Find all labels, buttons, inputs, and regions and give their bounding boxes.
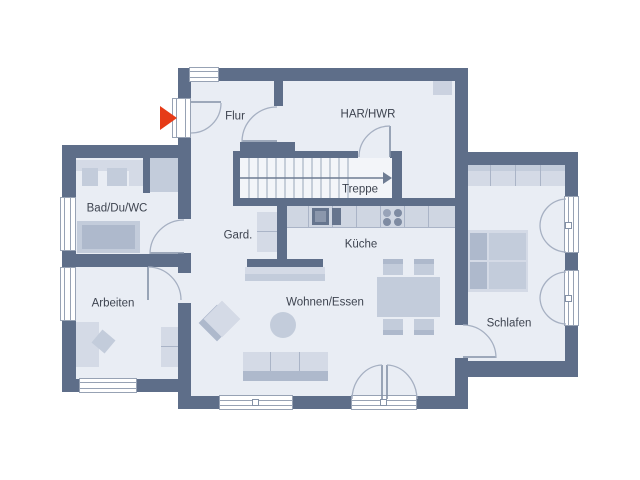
plan-line-overlay [0, 0, 640, 480]
room-label-gard: Gard. [224, 230, 253, 242]
hall-door-swing [242, 107, 277, 142]
room-label-flur: Flur [225, 111, 245, 123]
stair-direction-arrow [240, 172, 392, 184]
floor-plan: Flur HAR/HWR Treppe Bad/Du/WC Gard. Küch… [0, 0, 640, 480]
bedroom-window-swing-upper [540, 199, 566, 252]
room-label-kueche: Küche [345, 239, 378, 251]
terrace-double-door-swing [352, 365, 417, 399]
bathroom-door-swing [150, 220, 184, 254]
room-label-schlafen: Schlafen [487, 318, 532, 330]
room-label-har-hwr: HAR/HWR [341, 109, 396, 121]
room-label-treppe: Treppe [342, 184, 378, 196]
room-label-arbeiten: Arbeiten [92, 298, 135, 310]
room-label-wohnen: Wohnen/Essen [286, 297, 364, 309]
room-label-bad: Bad/Du/WC [87, 203, 148, 215]
utility-door-swing [359, 126, 390, 157]
entrance-door-swing [191, 102, 221, 133]
bedroom-door-swing [463, 325, 496, 358]
office-door-swing [148, 267, 181, 300]
bedroom-window-swing-lower [540, 272, 566, 324]
